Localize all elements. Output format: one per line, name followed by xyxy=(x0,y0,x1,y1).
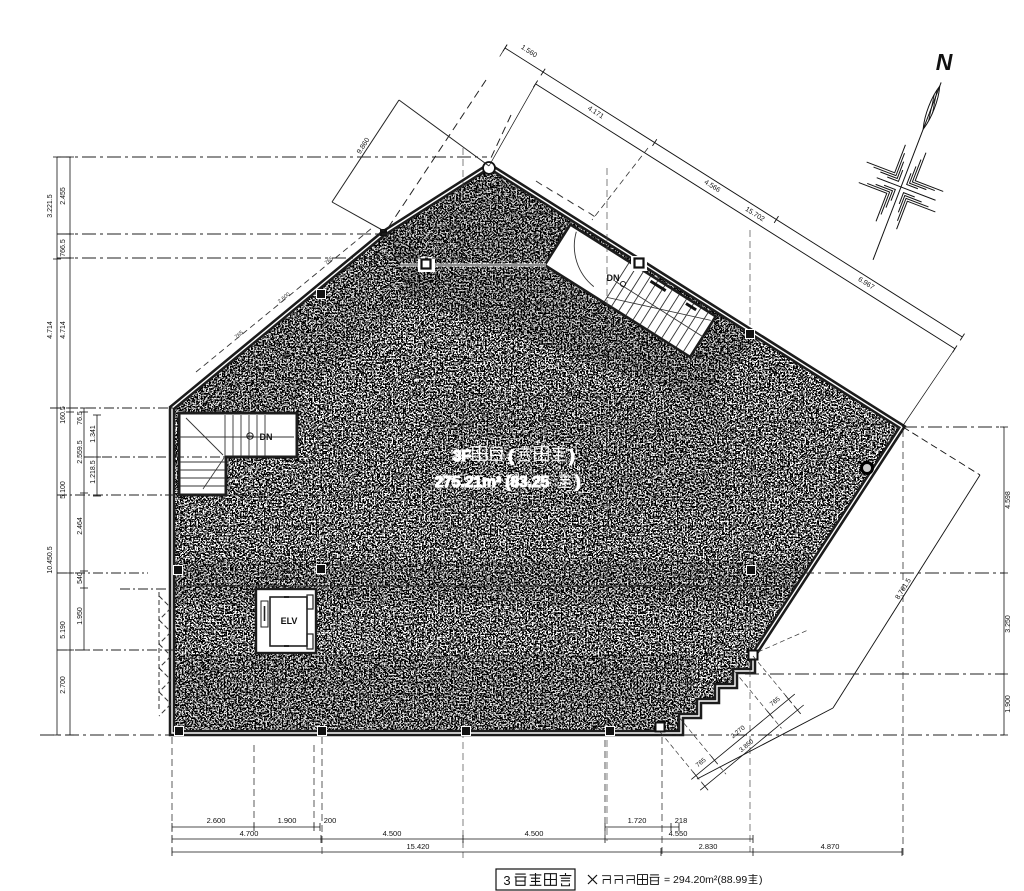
svg-text:ELV: ELV xyxy=(281,616,298,626)
svg-text:): ) xyxy=(759,874,763,886)
svg-text:3F: 3F xyxy=(453,448,472,465)
svg-text:160.5: 160.5 xyxy=(60,406,67,424)
svg-text:DN: DN xyxy=(607,273,620,283)
svg-text:540: 540 xyxy=(77,572,84,584)
svg-text:1.218.5: 1.218.5 xyxy=(90,460,97,483)
svg-text:2.600: 2.600 xyxy=(207,816,226,825)
svg-text:2.700: 2.700 xyxy=(60,676,67,694)
svg-text:4.500: 4.500 xyxy=(383,829,402,838)
svg-text:218: 218 xyxy=(675,816,688,825)
svg-text:2.455: 2.455 xyxy=(60,187,67,205)
svg-text:2.830: 2.830 xyxy=(699,842,718,851)
svg-text:5.100: 5.100 xyxy=(60,481,67,499)
svg-text:1.341: 1.341 xyxy=(90,425,97,443)
svg-text:3: 3 xyxy=(503,873,510,888)
svg-text:5.190: 5.190 xyxy=(60,621,67,639)
svg-text:3.250: 3.250 xyxy=(1005,615,1012,633)
svg-text:): ) xyxy=(569,448,574,465)
svg-text:): ) xyxy=(575,474,580,491)
svg-text:4.700: 4.700 xyxy=(240,829,259,838)
svg-text:766.5: 766.5 xyxy=(60,239,67,257)
svg-text:(: ( xyxy=(508,448,514,465)
svg-text:1.900: 1.900 xyxy=(278,816,297,825)
svg-text:N: N xyxy=(936,49,953,75)
svg-text:2.559.5: 2.559.5 xyxy=(77,440,84,463)
svg-text:= 294.20m²(88.99: = 294.20m²(88.99 xyxy=(664,874,747,886)
svg-text:4.714: 4.714 xyxy=(60,321,67,339)
svg-text:4.870: 4.870 xyxy=(821,842,840,851)
svg-text:4.598: 4.598 xyxy=(1005,491,1012,509)
svg-text:4.500: 4.500 xyxy=(525,829,544,838)
svg-text:4.550: 4.550 xyxy=(669,829,688,838)
svg-text:DN: DN xyxy=(260,432,273,442)
svg-text:200: 200 xyxy=(324,816,337,825)
svg-text:3.221.5: 3.221.5 xyxy=(47,194,54,217)
svg-text:10.450.5: 10.450.5 xyxy=(47,546,54,573)
svg-text:4.714: 4.714 xyxy=(47,321,54,339)
svg-text:1.720: 1.720 xyxy=(628,816,647,825)
svg-text:1.950: 1.950 xyxy=(77,607,84,625)
svg-text:2.464: 2.464 xyxy=(77,517,84,535)
svg-text:15.420: 15.420 xyxy=(407,842,430,851)
svg-text:1.900: 1.900 xyxy=(1005,695,1012,713)
svg-text:275.21m² (83.25: 275.21m² (83.25 xyxy=(435,474,550,491)
svg-text:76.5: 76.5 xyxy=(77,411,84,425)
